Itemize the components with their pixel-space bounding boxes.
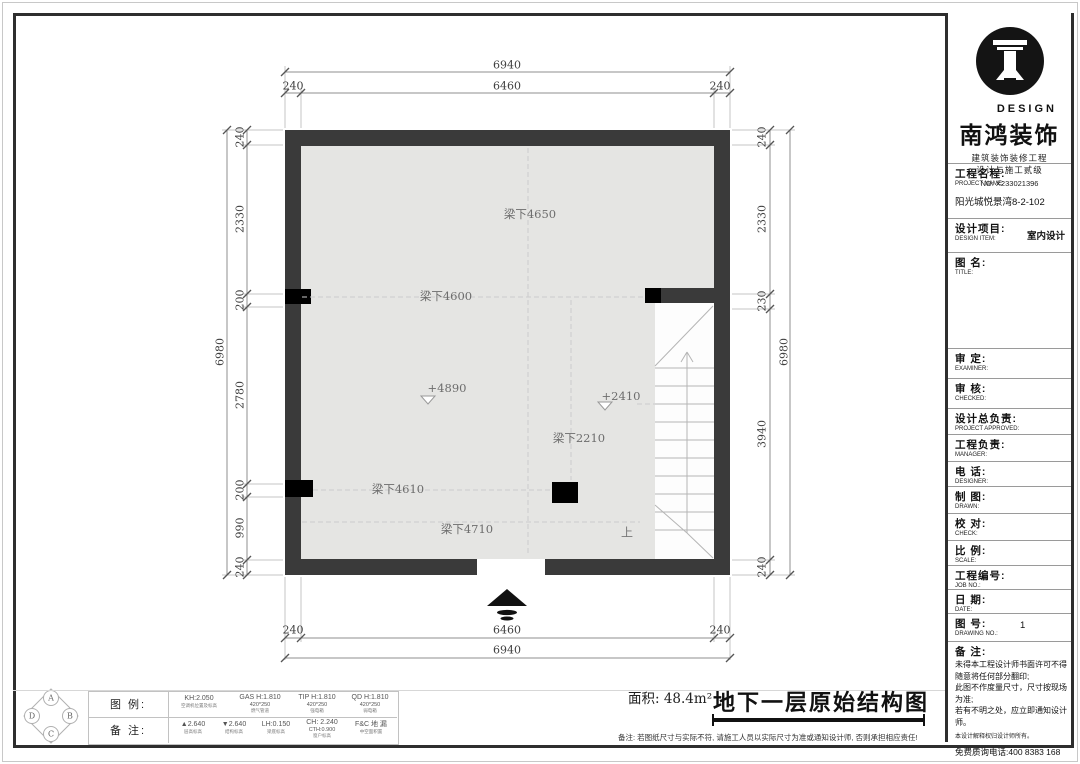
compass-letter-c: C — [48, 730, 54, 739]
dimension-ticks — [223, 68, 794, 662]
remark-item-beam-level: LH:0.150 梁底标高 — [254, 721, 298, 735]
dim-bottom-mid: 6460 — [493, 624, 521, 637]
compass-letter-b: B — [67, 712, 73, 721]
legend-row-divider — [88, 717, 397, 718]
remark-item-window-level: CH: 2.240 CTH:0.900 窗户标高 — [298, 719, 346, 739]
field-design-item: 设计项目: DESIGN ITEM: 室内设计 — [948, 218, 1071, 252]
field-checked: 审 核: CHECKED: — [948, 378, 1071, 408]
title-underline-tick — [923, 714, 925, 726]
dim-left-overall: 6980 — [214, 338, 227, 366]
beam-label: 梁下4710 — [441, 521, 493, 537]
legend-col-divider — [168, 691, 169, 743]
footer-note: 备注: 若图纸尺寸与实际不符, 请施工人员以实际尺寸为准或通知设计师, 否则承担… — [618, 732, 918, 743]
level-label: +2410 — [602, 389, 641, 403]
dim-left-seg: 2780 — [234, 381, 247, 409]
title-underline — [712, 718, 925, 722]
beam-label: 梁下4650 — [504, 206, 556, 222]
dim-left-seg: 200 — [234, 480, 247, 501]
dim-right-seg: 2330 — [756, 205, 769, 233]
dim-bottom-overall: 6940 — [493, 644, 521, 657]
field-scale: 比 例: SCALE: — [948, 540, 1071, 565]
company-name: 南鸿装饰 — [948, 116, 1071, 150]
field-title: 图 名: TITLE: — [948, 252, 1071, 348]
dim-left-seg: 990 — [234, 518, 247, 539]
dim-top-overall: 6940 — [493, 59, 521, 72]
remark-label: 备 注: — [110, 722, 146, 738]
dim-left-seg: 240 — [234, 127, 247, 148]
title-underline-tick — [712, 714, 714, 726]
extension-lines — [222, 66, 795, 660]
remark-item-structure-level: ▼2.640 结构标高 — [213, 721, 255, 735]
remark-line: 此图不作度量尺寸，尺寸按现场为准; — [955, 682, 1071, 705]
level-marker-icons — [421, 396, 612, 410]
dim-right-seg: 3940 — [756, 420, 769, 448]
dim-right-overall: 6980 — [778, 338, 791, 366]
field-remarks: 备 注: 未得本工程设计师书面许可不得随意将任何部分翻印; 此图不作度量尺寸，尺… — [948, 641, 1071, 742]
legend-label: 图 例: — [110, 696, 146, 712]
field-drawing-no: 图 号: DRAWING NO.: 1 — [948, 613, 1071, 641]
title-block: DESIGN 南鸿装饰 建筑装饰装修工程 设计与施工贰级 NO: X233021… — [945, 13, 1071, 742]
stair-up-label: 上 — [621, 524, 633, 541]
plan-linework — [0, 0, 945, 764]
brand-design-label: DESIGN — [948, 103, 1071, 115]
field-job-no: 工程编号: JOB NO.: — [948, 565, 1071, 589]
drawing-title: 地下一层原始结构图 — [713, 685, 929, 717]
area-value: 面积: 48.4m² — [628, 687, 712, 707]
dim-top-mid: 6460 — [493, 80, 521, 93]
compass-letter-d: D — [29, 712, 35, 721]
dim-right-seg: 230 — [756, 291, 769, 312]
dim-top-left: 240 — [283, 80, 304, 93]
hotline: 免费质询电话:400 8383 168 — [955, 746, 1071, 758]
dim-left-seg: 200 — [234, 290, 247, 311]
remark-item-floor-drain: F&C 地 漏 中空面积置 — [346, 721, 396, 735]
legend-item-tip: TIP H:1.810 420*250 强电箱 — [291, 694, 343, 714]
legend-item-qd: QD H:1.810 420*250 弱电箱 — [344, 694, 396, 714]
dim-right-seg: 240 — [756, 557, 769, 578]
field-manager: 工程负责: MANAGER: — [948, 434, 1071, 461]
field-phone: 电 话: DESIGNER: — [948, 461, 1071, 486]
company-logo-icon — [973, 24, 1047, 98]
legend-item-gas: GAS H:1.810 420*250 燃气管道 — [232, 694, 288, 714]
remark-item-finish-level: ▲2.640 层高标高 — [172, 721, 214, 735]
drawing-number-value: 1 — [1020, 620, 1025, 631]
stair-treads — [655, 306, 714, 558]
field-date: 日 期: DATE: — [948, 589, 1071, 613]
beam-label: 梁下4610 — [372, 481, 424, 497]
remark-line: 若有不明之处，应立即通知设计师。 — [955, 705, 1071, 728]
brand-area: DESIGN 南鸿装饰 建筑装饰装修工程 设计与施工贰级 NO: X233021… — [948, 13, 1071, 188]
field-check: 校 对: CHECK: — [948, 513, 1071, 540]
remark-line: 未得本工程设计师书面许可不得随意将任何部分翻印; — [955, 659, 1071, 682]
field-drawn: 制 图: DRAWN: — [948, 486, 1071, 513]
compass-letter-a: A — [48, 694, 54, 703]
entrance-arrow-icon — [487, 589, 527, 621]
dim-left-seg: 2330 — [234, 205, 247, 233]
level-label: +4890 — [428, 381, 467, 395]
dim-left-seg: 240 — [234, 557, 247, 578]
dim-bottom-left: 240 — [283, 624, 304, 637]
field-examiner: 审 定: EXAMINER: — [948, 348, 1071, 378]
dim-top-right: 240 — [710, 80, 731, 93]
field-project-name: 工程名程: PROJECT NAME: 阳光城悦景湾8-2-102 — [948, 163, 1071, 218]
dim-bottom-right: 240 — [710, 624, 731, 637]
beam-label: 梁下2210 — [553, 430, 605, 446]
beam-label: 梁下4600 — [420, 288, 472, 304]
beam-lines — [302, 148, 656, 556]
dim-right-seg: 240 — [756, 127, 769, 148]
legend-item-kh: KH:2.050 空调机位置及标高 — [173, 695, 225, 709]
remark-small: 本设计解释权归设计师所有。 — [955, 731, 1071, 740]
drawing-sheet: 梁下4650 梁下4600 +4890 +2410 梁下2210 梁下4610 … — [0, 0, 1080, 764]
dimension-lines — [227, 72, 790, 658]
field-project-approved: 设计总负责: PROJECT APPROVED: — [948, 408, 1071, 434]
